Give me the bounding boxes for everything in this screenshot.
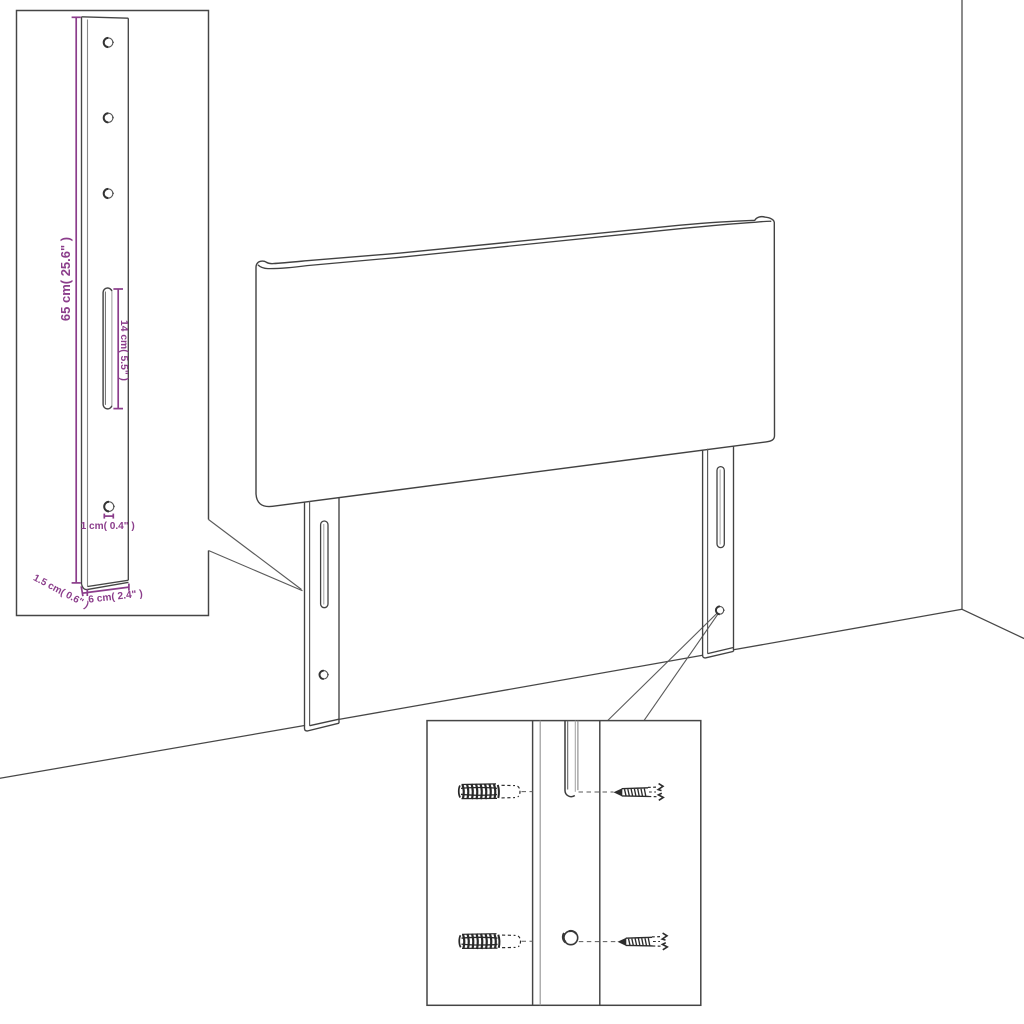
svg-text:65 cm( 25.6" ): 65 cm( 25.6" )	[58, 237, 73, 321]
svg-text:14 cm( 5.5" ): 14 cm( 5.5" )	[118, 320, 129, 381]
svg-text:1 cm( 0.4" ): 1 cm( 0.4" )	[81, 521, 135, 532]
